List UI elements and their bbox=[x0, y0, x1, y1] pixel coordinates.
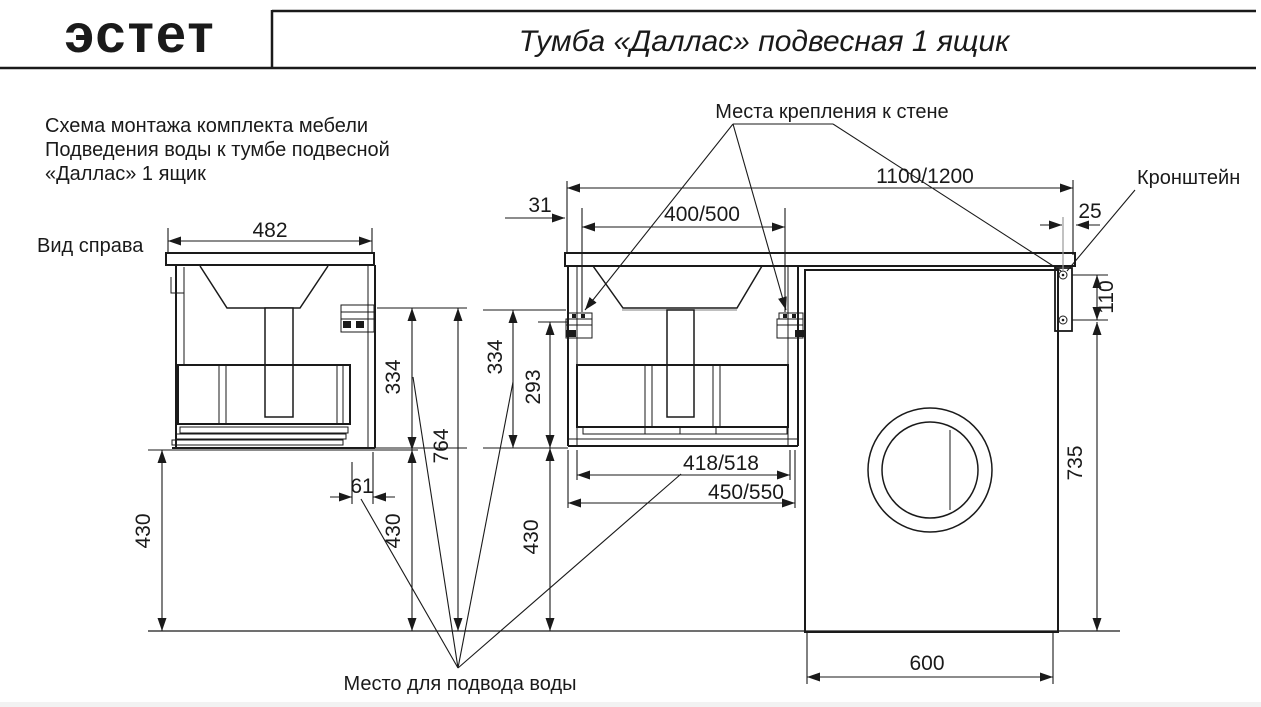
dim-430-side-left: 430 bbox=[132, 513, 155, 548]
front-view bbox=[565, 253, 1075, 446]
bracket-label: Кронштейн bbox=[1137, 167, 1240, 189]
dim-430-side-right: 430 bbox=[382, 513, 405, 548]
bracket-screw-block bbox=[356, 321, 364, 328]
technical-drawing: эстет Тумба «Даллас» подвесная 1 ящик Сх… bbox=[0, 0, 1261, 702]
drum-door-inner bbox=[882, 422, 978, 518]
wall-mounts-label: Места крепления к стене bbox=[715, 101, 948, 123]
dim-430-front: 430 bbox=[520, 519, 543, 554]
dim-482: 482 bbox=[252, 219, 287, 242]
right-mount-bracket bbox=[777, 313, 805, 338]
dim-400-500: 400/500 bbox=[664, 203, 740, 226]
dim-31: 31 bbox=[528, 194, 551, 217]
countertop bbox=[565, 253, 1075, 266]
drawing-page: эстет Тумба «Даллас» подвесная 1 ящик Сх… bbox=[0, 0, 1261, 702]
page-title: Тумба «Даллас» подвесная 1 ящик bbox=[519, 25, 1011, 58]
dim-600: 600 bbox=[909, 652, 944, 675]
dim-1100-1200: 1100/1200 bbox=[876, 165, 974, 188]
dim-110: 110 bbox=[1095, 280, 1118, 313]
dim-418-518: 418/518 bbox=[683, 452, 759, 475]
note-line-2: Подведения воды к тумбе подвесной bbox=[45, 139, 390, 161]
dim-450-550: 450/550 bbox=[708, 481, 784, 504]
water-supply-label: Место для подвода воды bbox=[343, 673, 576, 695]
dim-334-front: 334 bbox=[484, 339, 507, 374]
side-panel-notch bbox=[171, 267, 184, 293]
side-countertop bbox=[166, 253, 374, 265]
dim-25: 25 bbox=[1078, 200, 1101, 223]
wall-mounts-callout: Места крепления к стене bbox=[585, 101, 1061, 310]
drain-pipe bbox=[667, 310, 694, 417]
dim-735: 735 bbox=[1064, 445, 1087, 480]
dim-61: 61 bbox=[350, 475, 373, 498]
side-plinth-strip bbox=[180, 427, 348, 433]
side-basin bbox=[200, 266, 328, 308]
note-line-3: «Даллас» 1 ящик bbox=[45, 163, 206, 185]
side-plinth-strip bbox=[176, 434, 346, 439]
drum-door-outer bbox=[868, 408, 992, 532]
washing-machine-body bbox=[805, 270, 1058, 632]
brand-logo: эстет bbox=[64, 4, 215, 64]
dim-764: 764 bbox=[430, 428, 453, 463]
side-drawer bbox=[178, 365, 350, 424]
bracket-screw-block bbox=[343, 321, 351, 328]
side-drain-pipe bbox=[265, 308, 293, 417]
side-view bbox=[166, 253, 375, 448]
drawer-rail bbox=[583, 427, 787, 434]
side-mount-bracket bbox=[341, 305, 374, 332]
washing-machine bbox=[805, 270, 1058, 632]
dim-334-side: 334 bbox=[382, 359, 405, 394]
side-plinth-strip bbox=[172, 440, 343, 445]
basin bbox=[593, 266, 762, 308]
side-view-label: Вид справа bbox=[37, 235, 144, 257]
left-mount-bracket bbox=[566, 313, 592, 338]
front-view-dimensions: 1100/1200 31 400/500 25 110 735 334 293 … bbox=[483, 165, 1118, 684]
dim-293: 293 bbox=[522, 369, 545, 404]
note-line-1: Схема монтажа комплекта мебели bbox=[45, 115, 368, 137]
